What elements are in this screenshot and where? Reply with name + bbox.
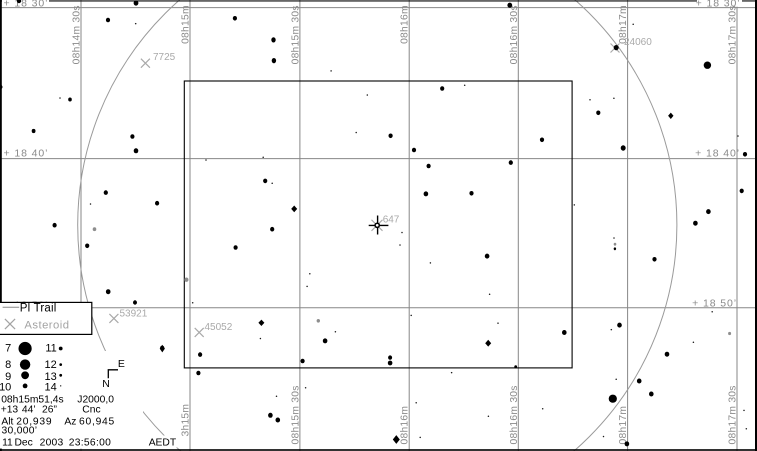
svg-text:08h15m: 08h15m [181, 5, 192, 44]
svg-text:14: 14 [45, 382, 57, 394]
svg-text:+ 18 40’: + 18 40’ [695, 148, 740, 160]
svg-text:08h15m 30s: 08h15m 30s [290, 385, 301, 444]
svg-text:8: 8 [5, 359, 11, 371]
svg-text:AEDT: AEDT [149, 438, 177, 449]
svg-text:Az: Az [64, 417, 76, 428]
svg-text:Dec: Dec [15, 438, 33, 449]
svg-text:08h17m 30s: 08h17m 30s [728, 5, 739, 64]
svg-text:+ 18 40’: + 18 40’ [4, 148, 49, 160]
svg-text:60,945: 60,945 [79, 417, 115, 428]
svg-text:08h15m 30s: 08h15m 30s [290, 5, 301, 64]
svg-text:11: 11 [2, 438, 13, 449]
svg-text:23:56:00: 23:56:00 [69, 438, 111, 449]
svg-text:E: E [118, 358, 125, 370]
svg-text:08h16m 30s: 08h16m 30s [509, 385, 520, 444]
svg-text:08h16m: 08h16m [400, 406, 411, 445]
svg-text:647: 647 [383, 214, 400, 225]
svg-text:3h15m: 3h15m [181, 404, 192, 437]
svg-text:+ 18 30’: + 18 30’ [4, 0, 49, 9]
svg-text:+13: +13 [1, 405, 19, 416]
svg-text:12: 12 [45, 359, 57, 371]
svg-text:N: N [102, 378, 110, 390]
svg-text:26”: 26” [42, 405, 57, 416]
svg-text:+ 18 50’: + 18 50’ [692, 297, 737, 309]
svg-text:10: 10 [0, 382, 11, 394]
svg-text:45052: 45052 [205, 322, 233, 333]
svg-text:Asteroid: Asteroid [24, 320, 69, 332]
svg-text:53921: 53921 [120, 308, 148, 319]
svg-text:08h17m 30s: 08h17m 30s [728, 385, 739, 444]
svg-text:Pl Trail: Pl Trail [20, 303, 57, 315]
svg-text:08h14m 30s: 08h14m 30s [72, 5, 83, 64]
svg-text:Cnc: Cnc [82, 405, 100, 416]
svg-text:7725: 7725 [153, 52, 176, 63]
svg-text:08h17m: 08h17m [618, 406, 629, 445]
svg-text:11: 11 [45, 343, 56, 355]
svg-text:7: 7 [5, 343, 11, 355]
svg-text:08h17m: 08h17m [618, 5, 629, 44]
svg-text:2003: 2003 [40, 438, 64, 449]
svg-text:30,000’: 30,000’ [2, 426, 38, 437]
svg-text:08h16m 30s: 08h16m 30s [509, 5, 520, 64]
svg-text:08h16m: 08h16m [400, 5, 411, 44]
svg-text:44’: 44’ [22, 405, 36, 416]
